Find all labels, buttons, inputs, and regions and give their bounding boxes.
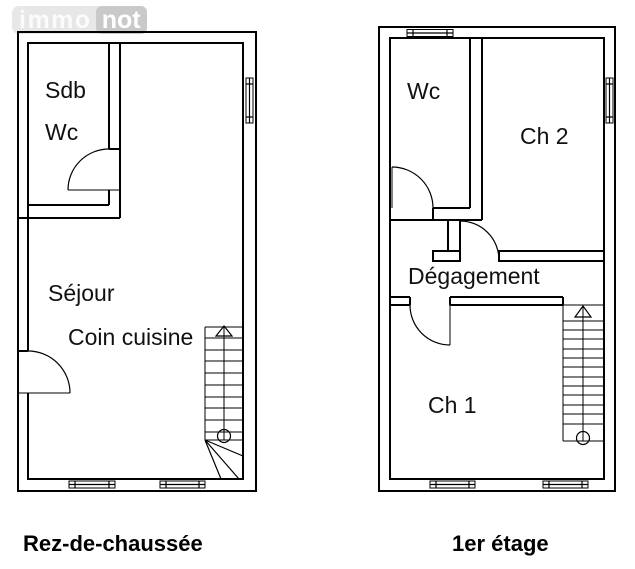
first-window-bottom-2 xyxy=(543,481,588,488)
ground-window-right xyxy=(246,78,253,123)
room-label-wc-first: Wc xyxy=(407,78,440,104)
ground-floor-plan: Sdb Wc Séjour Coin cuisine xyxy=(18,32,256,491)
floor-plans-drawing: Sdb Wc Séjour Coin cuisine xyxy=(0,0,635,569)
first-window-bottom-1 xyxy=(430,481,475,488)
room-label-sejour: Séjour xyxy=(48,280,115,306)
first-staircase xyxy=(563,305,604,445)
ground-window-bottom-2 xyxy=(160,481,205,488)
first-floor-plan: Wc Ch 2 Dégagement Ch 1 xyxy=(379,27,615,491)
ch2-wall-left-segment xyxy=(433,251,460,261)
room-label-sdb: Sdb xyxy=(45,77,86,103)
stair-winder-fan xyxy=(205,440,243,479)
room-label-wc-ground: Wc xyxy=(45,119,78,145)
floor-plan-document: immo not xyxy=(0,0,635,569)
room-label-coin-cuisine: Coin cuisine xyxy=(68,324,193,350)
room-label-degagement: Dégagement xyxy=(408,263,540,289)
wc-door-arc xyxy=(392,167,433,208)
ground-inner-wall xyxy=(28,43,243,479)
sdb-door-arc xyxy=(68,149,109,190)
ground-window-bottom-1 xyxy=(69,481,115,488)
first-window-right xyxy=(606,78,613,123)
first-window-top xyxy=(407,30,453,37)
caption-first-floor: 1er étage xyxy=(452,531,549,557)
ch2-door-arc xyxy=(460,221,499,260)
room-label-ch2: Ch 2 xyxy=(520,123,569,149)
caption-ground-floor: Rez-de-chaussée xyxy=(23,531,203,557)
ch2-wall-right-segment xyxy=(499,251,604,261)
degagement-wall-stub xyxy=(448,220,460,251)
sejour-door-arc xyxy=(28,351,70,393)
ch1-door-arc xyxy=(410,305,450,345)
ground-staircase xyxy=(205,326,243,479)
room-label-ch1: Ch 1 xyxy=(428,392,477,418)
